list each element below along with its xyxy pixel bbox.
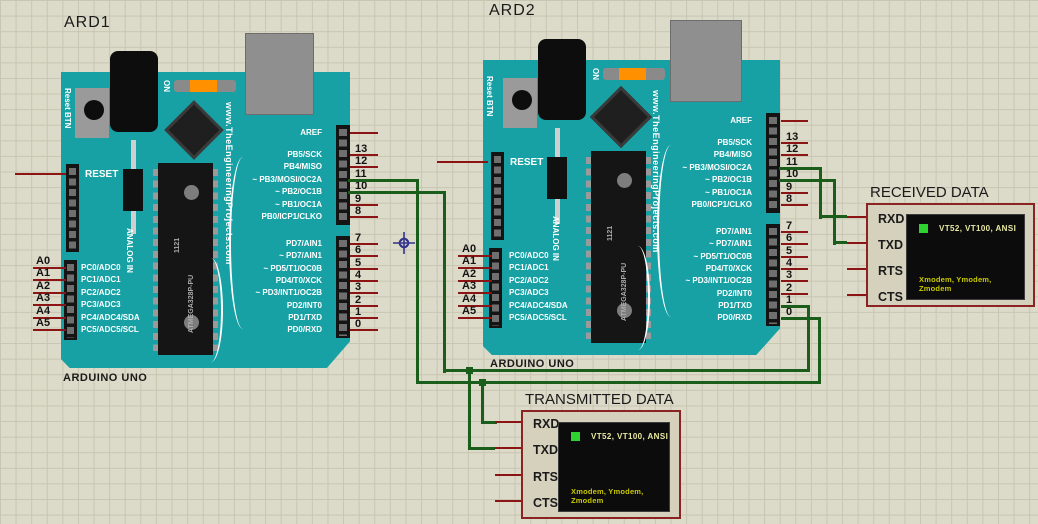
wire-ard2-d0[interactable] [818,317,821,384]
digital-header-top[interactable] [336,125,350,225]
pin-label: PD1/TXD [288,313,322,322]
analog-pin-stub[interactable] [458,317,492,319]
pin-label: PB0/ICP1/CLKO [262,212,322,221]
board2-ref-label: ARD2 [489,2,536,20]
wire-tap-transmitted-txd[interactable] [468,447,495,450]
analog-pin-name: A2 [462,268,476,280]
digital-header-top[interactable] [766,113,780,213]
pin-label: PC2/ADC2 [81,288,121,297]
pin-number: 4 [786,257,792,269]
analog-pin-name: A0 [36,255,50,267]
wire-ard1-d10-ard2-d1[interactable] [443,369,810,372]
wire-ard2-d1[interactable] [807,305,810,372]
pin-number: 6 [786,232,792,244]
wire-ard2-d10-received-txd[interactable] [833,241,847,244]
pin-label-aref: AREF [300,128,322,137]
pin-number: 4 [355,269,361,281]
analog-pin-stub[interactable] [33,329,66,331]
terminal-pin-stub-rxd[interactable] [495,421,521,423]
pin-label: PD4/T0/XCK [276,276,322,285]
origin-crosshair-icon [393,232,415,254]
pin-label: ~ PB2/OC1B [705,175,752,184]
terminal-emulation-text: VT52, VT100, ANSI [591,432,668,441]
pin-label: PC5/ADC5/SCL [81,325,139,334]
terminal-pin-cts[interactable]: CTS [533,496,558,510]
pin-label: PB0/ICP1/CLKO [692,200,752,209]
wire-ard1-d11[interactable] [348,179,418,182]
pin-number: 12 [355,155,367,167]
terminal-pin-stub-txd[interactable] [847,242,866,244]
terminal-pin-rxd[interactable]: RXD [878,212,904,226]
chip-part-number: ATMEGA328P-PU [621,181,628,321]
virtual-terminal-received[interactable]: RECEIVED DATA RXD TXD RTS CTS VT52, VT10… [866,203,1035,307]
analog-in-label: ANALOG IN [551,216,560,280]
pin-number: 8 [355,205,361,217]
wire-ard2-d1[interactable] [781,305,810,308]
chip-date-code: 1121 [174,193,181,253]
reset-button-cap[interactable] [84,100,104,120]
schematic-canvas[interactable]: ARD1 ARD2 Reset BTN ON www.TheEngineerin… [0,0,1038,524]
pin-number: 1 [355,306,361,318]
terminal-title: TRANSMITTED DATA [525,391,674,408]
digital-header-bottom[interactable] [766,224,780,326]
reset-button-cap[interactable] [512,90,532,110]
terminal-screen: VT52, VT100, ANSI Xmodem, Ymodem, Zmodem [558,422,670,512]
reset-pin-label: RESET [85,169,118,180]
board-subtitle: ARDUINO UNO [63,372,147,384]
pin-number: 2 [786,282,792,294]
crystal [123,169,143,211]
pin-label: PC1/ADC1 [81,275,121,284]
pin-label: ~ PB1/OC1A [275,200,322,209]
analog-pin-name: A1 [36,267,50,279]
reset-pin-stub[interactable] [15,173,66,175]
terminal-status-led [919,224,928,233]
on-led-label: ON [591,68,600,88]
arduino-board-ard1[interactable]: Reset BTN ON www.TheEngineeringProjects.… [61,72,350,368]
analog-header[interactable] [489,248,502,328]
terminal-protocol-text: Xmodem, Ymodem, Zmodem [571,487,669,505]
pin-label: ~ PB2/OC1B [275,187,322,196]
reset-pin-label: RESET [510,157,543,168]
pin-label: PC3/ADC3 [81,300,121,309]
pin-number: 13 [355,143,367,155]
analog-pin-name: A3 [36,292,50,304]
wire-ard1-d11-ard2-d0[interactable] [416,381,821,384]
chip-date-code: 1121 [607,181,614,241]
pin-label: ~ PB3/MOSI/OC2A [252,175,322,184]
usb-connector [245,33,314,115]
pin-label: PC4/ADC4/SDA [509,301,568,310]
pin-number: 5 [355,257,361,269]
pin-label: PD0/RXD [287,325,322,334]
pin-label: ~ PD7/AIN1 [709,239,752,248]
analog-pin-name: A1 [462,255,476,267]
reset-btn-label: Reset BTN [485,76,494,138]
terminal-pin-stub-rxd[interactable] [847,216,866,218]
pin-number: 7 [786,220,792,232]
reset-header[interactable] [491,152,504,240]
power-jack [110,51,158,132]
on-led-label: ON [162,80,171,100]
pin-label: PC1/ADC1 [509,263,549,272]
pin-label: ~ PB3/MOSI/OC2A [682,163,752,172]
wire-ard1-d11[interactable] [416,179,419,384]
wire-ard2-d11-received-rxd[interactable] [819,167,822,219]
atmega328p-chip[interactable]: ATMEGA328P-PU 1121 [158,163,213,355]
pin-label: ~ PD5/T1/OC0B [694,252,752,261]
pin-number: 2 [355,294,361,306]
terminal-pin-stub-rts[interactable] [495,474,521,476]
analog-pin-name: A5 [462,305,476,317]
reset-header[interactable] [66,164,79,252]
pin-number: 6 [355,244,361,256]
analog-pin-name: A5 [36,317,50,329]
wire-ard1-d10[interactable] [443,191,446,373]
pin-number: 3 [355,281,361,293]
power-jack [538,39,586,120]
wire-ard2-d0[interactable] [781,317,821,320]
pin-number: 0 [355,318,361,330]
chip-part-number: ATMEGA328P-PU [188,193,195,333]
terminal-emulation-text: VT52, VT100, ANSI [939,224,1016,233]
terminal-pin-txd[interactable]: TXD [533,443,558,457]
terminal-pin-rts[interactable]: RTS [878,264,903,278]
pin-label: PB5/SCK [717,138,752,147]
pin-label: PC2/ADC2 [509,276,549,285]
terminal-status-led [571,432,580,441]
board1-ref-label: ARD1 [64,14,111,32]
pin-label: ~ PD5/T1/OC0B [264,264,322,273]
analog-in-label: ANALOG IN [125,228,134,292]
terminal-pin-stub-cts[interactable] [847,294,866,296]
analog-pin-name: A4 [462,293,476,305]
reset-btn-label: Reset BTN [63,88,72,150]
terminal-screen: VT52, VT100, ANSI Xmodem, Ymodem, Zmodem [906,214,1025,300]
terminal-pin-stub-txd[interactable] [495,447,521,449]
pin-label: ~ PD7/AIN1 [279,251,322,260]
power-led [190,80,217,92]
terminal-pin-cts[interactable]: CTS [878,290,903,304]
junction-dot [479,379,486,386]
analog-pin-name: A2 [36,280,50,292]
crystal [547,157,567,199]
terminal-pin-txd[interactable]: TXD [878,238,903,252]
pin-label: PB5/SCK [287,150,322,159]
pin-label: PB4/MISO [714,150,752,159]
terminal-pin-rxd[interactable]: RXD [533,417,559,431]
wire-ard2-d11-received-rxd[interactable] [779,167,822,170]
pin-number: 3 [786,269,792,281]
pin-label: PD2/INT0 [287,301,322,310]
usb-connector [670,20,742,102]
wire-ard2-d10-received-txd[interactable] [779,179,836,182]
power-led-bar [174,80,236,92]
pin-label-aref: AREF [730,116,752,125]
wire-tap-transmitted-rxd[interactable] [481,381,484,424]
pin-label: PD0/RXD [717,313,752,322]
power-led [619,68,646,80]
wire-ard1-d10[interactable] [348,191,446,194]
pin-label: PD2/INT0 [717,289,752,298]
analog-pin-name: A3 [462,280,476,292]
arduino-board-ard2[interactable]: Reset BTN ON www.TheEngineeringProjects.… [483,60,780,355]
wire-ard2-d10-received-txd[interactable] [833,179,836,245]
junction-dot [466,367,473,374]
pin-label: PC5/ADC5/SCL [509,313,567,322]
reset-button[interactable] [75,88,109,138]
pin-number: 13 [786,131,798,143]
pin-label: PB4/MISO [284,162,322,171]
pin-label: PC0/ADC0 [81,263,121,272]
virtual-terminal-transmitted[interactable]: TRANSMITTED DATA RXD TXD RTS CTS VT52, V… [521,410,681,519]
analog-pin-name: A4 [36,305,50,317]
pin-number: 5 [786,245,792,257]
pin-number: 9 [355,193,361,205]
digital-header-bottom[interactable] [336,236,350,338]
pin-number: 8 [786,193,792,205]
pin-stub[interactable] [350,132,378,134]
power-led-bar [603,68,665,80]
wire-tap-transmitted-txd[interactable] [468,369,471,450]
pin-label: PD1/TXD [718,301,752,310]
terminal-pin-stub-cts[interactable] [495,500,521,502]
pin-label: ~ PD3/INT1/OC2B [256,288,322,297]
pin-label: PC3/ADC3 [509,288,549,297]
terminal-pin-rts[interactable]: RTS [533,470,558,484]
analog-header[interactable] [64,260,77,340]
terminal-title: RECEIVED DATA [870,184,989,201]
pin-number: 9 [786,181,792,193]
pin-label: PD4/T0/XCK [706,264,752,273]
terminal-protocol-text: Xmodem, Ymodem, Zmodem [919,275,1024,293]
reset-button[interactable] [503,78,537,128]
pin-label: PC4/ADC4/SDA [81,313,140,322]
pin-label: ~ PD3/INT1/OC2B [686,276,752,285]
pin-number: 7 [355,232,361,244]
pin-number: 12 [786,143,798,155]
reset-pin-stub[interactable] [437,161,488,163]
analog-pin-name: A0 [462,243,476,255]
pin-label: PC0/ADC0 [509,251,549,260]
pin-stub[interactable] [781,120,808,122]
terminal-pin-stub-rts[interactable] [847,268,866,270]
pin-label: PD7/AIN1 [716,227,752,236]
pin-label: PD7/AIN1 [286,239,322,248]
pin-label: ~ PB1/OC1A [705,188,752,197]
